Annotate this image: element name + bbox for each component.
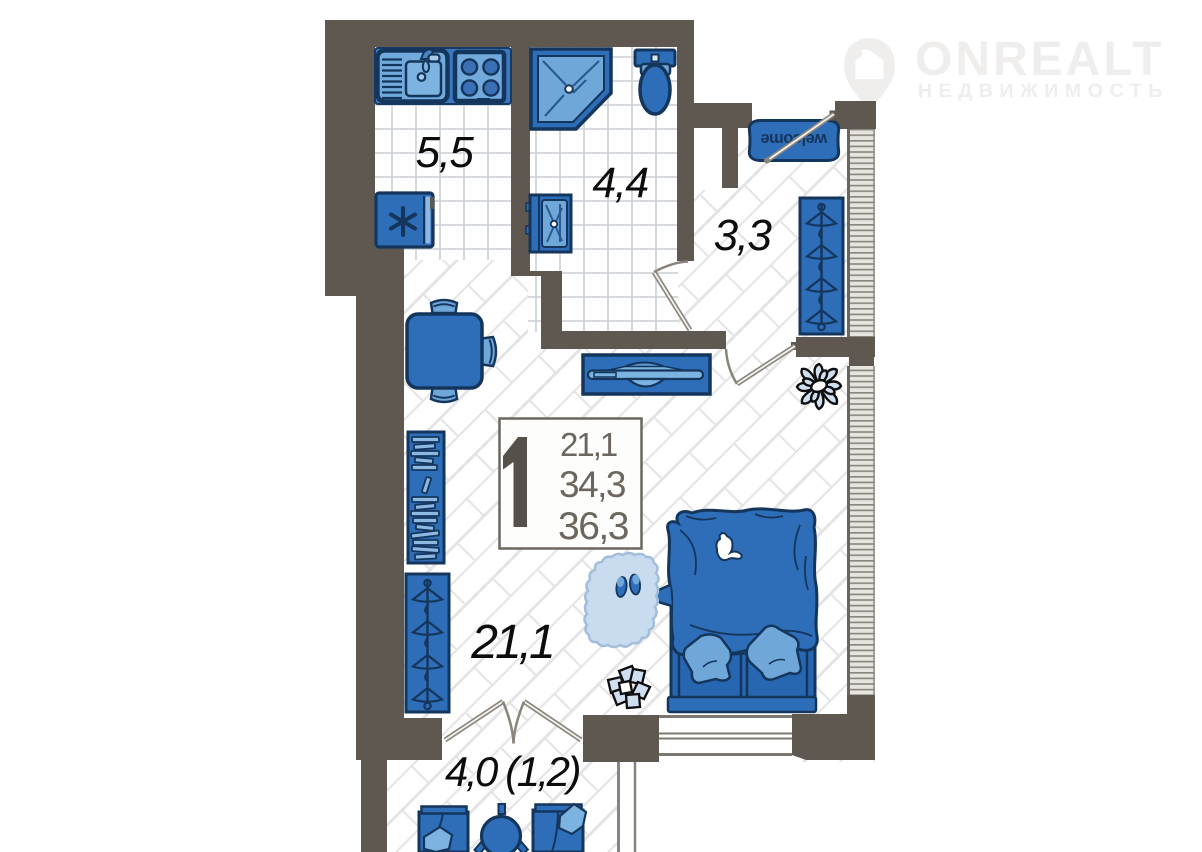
svg-text:34,3: 34,3 [559, 464, 625, 505]
svg-text:ONREALT: ONREALT [915, 33, 1164, 86]
svg-text:5,5: 5,5 [416, 128, 475, 177]
svg-text:3,3: 3,3 [714, 211, 773, 260]
svg-text:21,1: 21,1 [470, 616, 552, 669]
svg-text:4,4: 4,4 [592, 159, 648, 207]
svg-text:4,0 (1,2): 4,0 (1,2) [445, 748, 579, 795]
svg-text:НЕДВИЖИМОСТЬ: НЕДВИЖИМОСТЬ [918, 80, 1169, 102]
svg-text:36,3: 36,3 [558, 505, 628, 548]
svg-text:21,1: 21,1 [560, 426, 617, 463]
